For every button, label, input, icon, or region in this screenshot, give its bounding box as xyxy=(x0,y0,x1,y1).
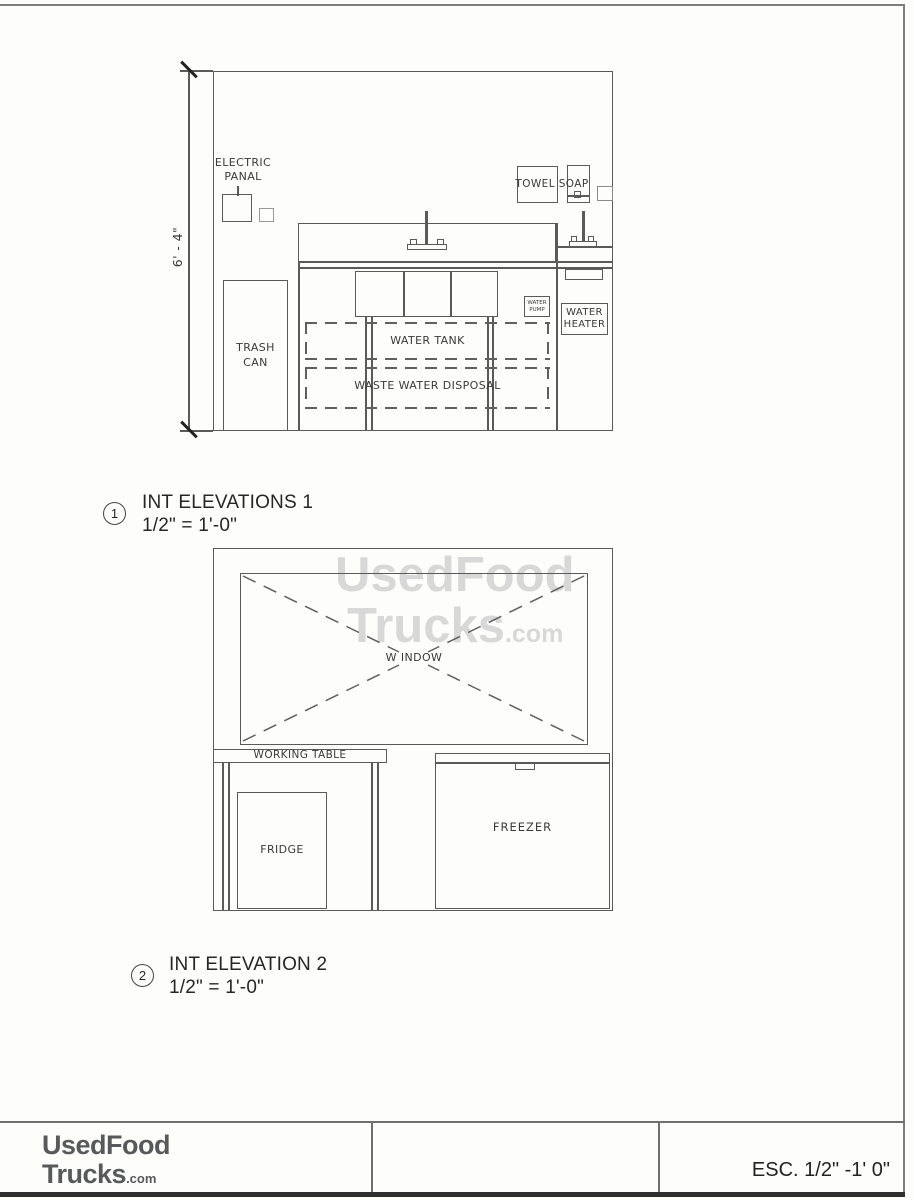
dimension-extension-top xyxy=(180,70,213,72)
usedfoodtrucks-logo: UsedFood Trucks.com xyxy=(42,1131,170,1189)
window-label: W INDOW xyxy=(364,651,464,665)
logo-line1: UsedFood xyxy=(42,1131,170,1160)
counter-partition xyxy=(556,223,558,431)
fridge-box: FRIDGE xyxy=(237,792,327,909)
towel-soap-label: TOWEL SOAP xyxy=(512,178,592,192)
titleblock-border-top xyxy=(0,1121,905,1123)
page-border-right xyxy=(903,4,905,1196)
faucet-handle-right xyxy=(437,239,444,245)
handwash-faucet-pipe xyxy=(582,211,585,242)
electric-panel-label: ELECTRIC PANAL xyxy=(207,156,279,185)
water-heater-box: WATER HEATER xyxy=(561,303,608,335)
sink-divider-1 xyxy=(403,271,405,317)
elevation-2-title: INT ELEVATION 2 xyxy=(169,954,327,976)
working-table-box: WORKING TABLE xyxy=(213,749,387,763)
table-leg-4 xyxy=(377,763,379,911)
water-tank-outline-bottom xyxy=(305,358,550,360)
handwash-basin xyxy=(565,269,603,280)
titleblock-border-bottom xyxy=(0,1192,905,1197)
trash-can-box: TRASH CAN xyxy=(223,280,288,431)
elevation-1-title: INT ELEVATIONS 1 xyxy=(142,492,313,514)
waste-water-label: WASTE WATER DISPOSAL xyxy=(305,379,550,393)
sink-divider-2 xyxy=(450,271,452,317)
faucet-pipe xyxy=(425,211,428,245)
working-table-label: WORKING TABLE xyxy=(254,749,347,763)
counter-band-line1 xyxy=(298,261,613,263)
outlet-box xyxy=(259,208,274,222)
water-heater-label: WATER HEATER xyxy=(564,307,606,332)
page-border-top xyxy=(0,4,905,6)
freezer-label: FREEZER xyxy=(460,820,585,835)
scale-note: ESC. 1/2" -1' 0" xyxy=(700,1159,890,1182)
electric-panel-box xyxy=(222,194,252,222)
elevation-1-scale: 1/2" = 1'-0" xyxy=(142,515,237,537)
elevation-2-number: 2 xyxy=(131,964,154,987)
table-leg-3 xyxy=(371,763,373,911)
water-pump-box: WATER PUMP xyxy=(524,296,550,317)
freezer-handle xyxy=(515,763,535,770)
table-leg-1 xyxy=(222,763,224,911)
wall-outlet-box xyxy=(597,186,613,201)
sink-compartments xyxy=(355,271,498,317)
elevation-1-number: 1 xyxy=(103,502,126,525)
soap-dispenser-nozzle xyxy=(574,191,581,198)
blueprint-page: UsedFood Trucks.com 6' - 4" ELECTRIC PAN… xyxy=(0,0,914,1200)
fridge-label: FRIDGE xyxy=(260,843,304,857)
waste-water-outline-top xyxy=(305,367,550,369)
water-tank-label: WATER TANK xyxy=(305,334,550,348)
dimension-label: 6' - 4" xyxy=(153,217,203,277)
trash-can-label: TRASH CAN xyxy=(236,341,275,370)
logo-line2: Trucks.com xyxy=(42,1160,170,1189)
waste-water-outline-bottom xyxy=(305,407,550,409)
titleblock-divider-2 xyxy=(658,1121,660,1192)
faucet-handle-left xyxy=(410,239,417,245)
dimension-extension-bottom xyxy=(180,430,213,432)
handwash-handle-right xyxy=(588,236,594,242)
counter-left-edge xyxy=(298,262,300,431)
water-tank-outline-top xyxy=(305,322,550,324)
titleblock-divider-1 xyxy=(371,1121,373,1192)
table-leg-2 xyxy=(228,763,230,911)
logo-suffix: .com xyxy=(126,1171,156,1186)
water-pump-label: WATER PUMP xyxy=(527,300,546,313)
handwash-handle-left xyxy=(571,236,577,242)
elevation-2-scale: 1/2" = 1'-0" xyxy=(169,977,264,999)
